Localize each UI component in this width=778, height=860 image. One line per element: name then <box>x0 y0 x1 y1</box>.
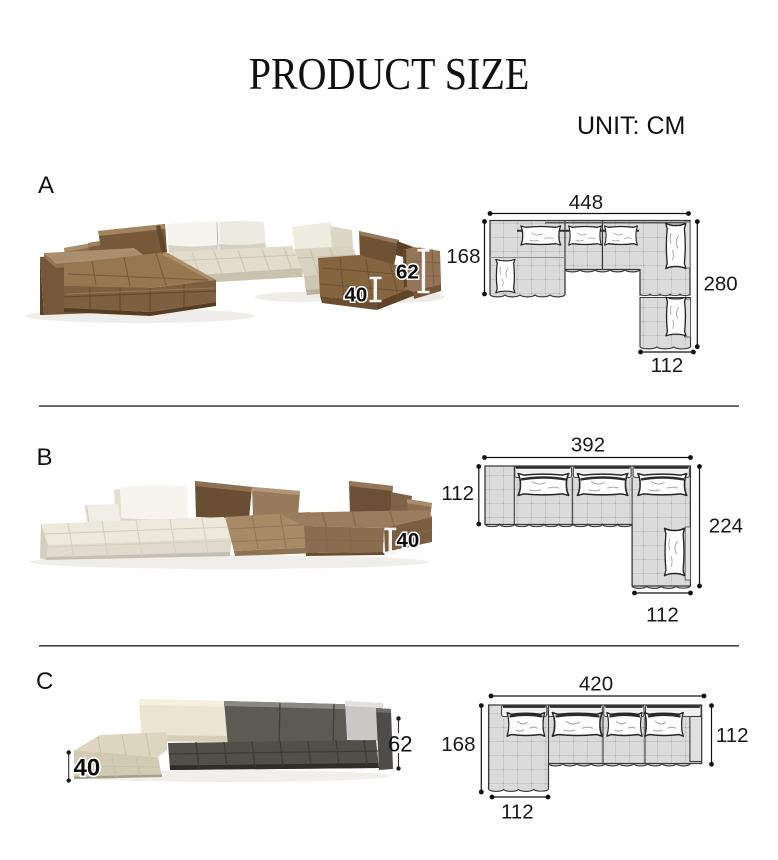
svg-text:168: 168 <box>446 245 480 268</box>
svg-text:392: 392 <box>571 434 605 457</box>
svg-text:40: 40 <box>397 529 420 552</box>
svg-text:112: 112 <box>501 800 534 823</box>
svg-text:112: 112 <box>646 603 679 626</box>
svg-text:420: 420 <box>579 673 613 696</box>
svg-text:62: 62 <box>396 261 419 284</box>
svg-text:224: 224 <box>709 515 743 538</box>
svg-text:40: 40 <box>345 284 368 307</box>
svg-text:62: 62 <box>388 732 412 757</box>
svg-text:40: 40 <box>74 755 101 782</box>
svg-text:112: 112 <box>716 724 749 747</box>
svg-text:280: 280 <box>704 273 738 296</box>
svg-text:448: 448 <box>569 191 603 214</box>
svg-text:168: 168 <box>441 733 475 756</box>
svg-text:112: 112 <box>651 354 684 377</box>
svg-text:112: 112 <box>441 482 474 505</box>
